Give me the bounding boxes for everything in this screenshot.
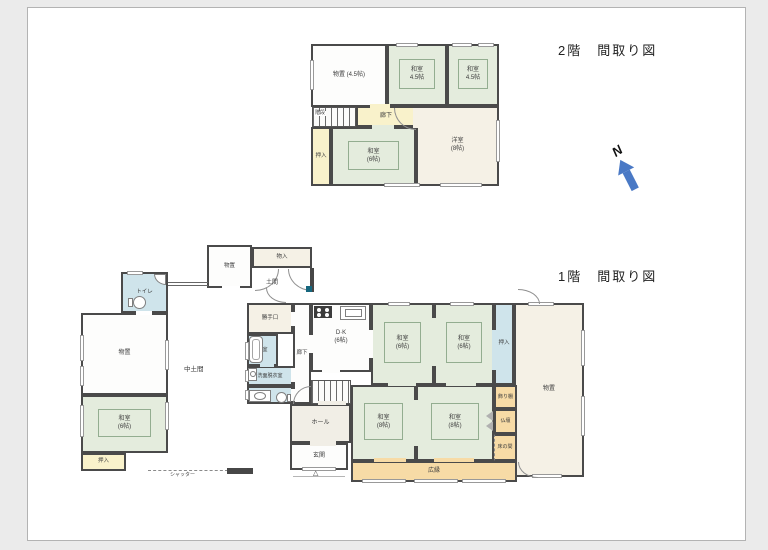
room-label: 廊下 bbox=[296, 350, 307, 357]
label-shutter: シャッター bbox=[170, 473, 195, 478]
room-label: 飾り棚 bbox=[498, 394, 513, 401]
door-opening bbox=[291, 368, 295, 382]
entrance-marker: △ bbox=[313, 470, 318, 477]
door-arc bbox=[266, 288, 286, 303]
window bbox=[127, 271, 143, 275]
window bbox=[302, 467, 336, 471]
room-label: 洗面脱衣室 bbox=[257, 373, 282, 380]
door-opening bbox=[322, 369, 340, 373]
window bbox=[362, 479, 406, 483]
room-label: (8帖) bbox=[451, 146, 464, 154]
door-opening bbox=[492, 330, 496, 370]
toilet2-tank-icon bbox=[287, 394, 291, 402]
room-label: 玄関 bbox=[313, 453, 325, 461]
door-opening bbox=[434, 458, 474, 462]
room-label: 廊下 bbox=[380, 113, 392, 121]
room-2f-storage: 物置 (4.5帖) bbox=[311, 44, 387, 107]
room-1f-genkan: 玄関 bbox=[290, 443, 348, 470]
room-label: (8帖) bbox=[377, 423, 390, 431]
porch-line bbox=[293, 476, 345, 477]
label-2f-stairs: 階段 bbox=[314, 111, 326, 116]
room-1f-washitsu-6b: 和室(6帖) bbox=[434, 303, 494, 385]
room-2f-yoshitsu: 洋室(8帖) bbox=[416, 106, 499, 186]
window bbox=[388, 302, 410, 306]
bathtub-icon bbox=[249, 336, 263, 363]
window bbox=[396, 43, 418, 47]
room-2f-washitsu-b: 和室4.5帖 bbox=[447, 44, 499, 106]
window bbox=[462, 479, 506, 483]
window bbox=[80, 366, 84, 386]
room-label: 和室 bbox=[449, 415, 461, 423]
room-1f-oshiire-right: 押入 bbox=[494, 303, 514, 385]
room-label: (6帖) bbox=[367, 157, 380, 165]
door-opening bbox=[432, 318, 436, 366]
door-opening bbox=[222, 286, 240, 290]
door-opening bbox=[309, 335, 313, 353]
door-opening bbox=[310, 441, 336, 446]
door-opening bbox=[388, 382, 416, 386]
door-opening bbox=[136, 311, 152, 315]
room-1f-storage-right: 物置 bbox=[514, 303, 584, 477]
room-label: 物入 bbox=[276, 254, 287, 261]
room-2f-washitsu-a: 和室4.5帖 bbox=[387, 44, 447, 106]
room-label: D·K bbox=[336, 330, 346, 338]
window bbox=[452, 43, 472, 47]
room-label: (6帖) bbox=[396, 344, 409, 352]
room-1f-katteguchi: 勝手口 bbox=[247, 303, 293, 334]
room-label: 仏壇 bbox=[500, 418, 510, 425]
room-1f-storage-left: 物置 bbox=[81, 313, 168, 395]
room-label: ホール bbox=[311, 420, 329, 428]
window bbox=[414, 479, 458, 483]
window bbox=[581, 396, 585, 436]
room-2f-oshiire: 押入 bbox=[311, 127, 331, 186]
connecting-wall bbox=[168, 282, 208, 286]
window bbox=[496, 120, 500, 162]
room-1f-washitsu-8b: 和室(8帖) bbox=[416, 385, 494, 461]
room-label: 和室 bbox=[396, 336, 408, 344]
room-label: 和室 bbox=[467, 67, 479, 75]
door-opening bbox=[318, 401, 346, 405]
door-opening bbox=[369, 330, 373, 358]
room-1f-hall: ホール bbox=[290, 404, 351, 443]
window bbox=[80, 335, 84, 361]
label-doma: 土間 bbox=[266, 280, 278, 286]
label-nakadoma: 中土間 bbox=[184, 367, 204, 374]
room-1f-washitsu-left: 和室(6帖) bbox=[81, 395, 168, 453]
room-label: 物置 bbox=[543, 386, 555, 394]
door-opening bbox=[372, 125, 394, 129]
room-label: 4.5帖 bbox=[410, 75, 424, 83]
room-label: 物置 bbox=[118, 350, 130, 358]
room-label: 押入 bbox=[98, 458, 109, 465]
window bbox=[80, 405, 84, 437]
room-label: 和室 bbox=[367, 149, 379, 157]
vanity-basin-icon bbox=[254, 392, 266, 400]
room-label: 押入 bbox=[498, 340, 509, 347]
room-label: 広縁 bbox=[428, 468, 440, 476]
room-label: 洋室 bbox=[451, 138, 463, 146]
room-2f-washitsu-c: 和室(6帖) bbox=[331, 127, 416, 186]
room-label: (6帖) bbox=[334, 338, 347, 346]
room-label: (8帖) bbox=[448, 423, 461, 431]
toilet2-bowl-icon bbox=[276, 392, 287, 403]
room-1f-storage-top: 物置 bbox=[207, 245, 252, 288]
room-1f-butsudan: 仏壇 bbox=[494, 409, 517, 434]
room-label: (6帖) bbox=[457, 344, 470, 352]
washer-drum-icon bbox=[250, 371, 256, 377]
room-label: 和室 bbox=[411, 67, 423, 75]
stove-icon bbox=[314, 306, 332, 318]
window bbox=[384, 183, 420, 187]
window bbox=[165, 402, 169, 430]
room-label: 物置 bbox=[224, 263, 235, 270]
room-label: 勝手口 bbox=[262, 315, 279, 322]
door-opening bbox=[374, 458, 406, 462]
room-1f-washitsu-8a: 和室(8帖) bbox=[351, 385, 416, 461]
room-label: 和室 bbox=[377, 415, 389, 423]
door-opening bbox=[414, 400, 418, 446]
folding-door-icon bbox=[486, 411, 494, 432]
room-label: 和室 bbox=[458, 336, 470, 344]
window bbox=[310, 60, 314, 90]
room-label: 4.5帖 bbox=[466, 75, 480, 83]
door-arc bbox=[518, 289, 540, 304]
door-opening bbox=[260, 363, 274, 367]
room-1f-tokonoma: 床の間 bbox=[494, 434, 517, 461]
door-opening bbox=[291, 312, 295, 326]
wall-segment bbox=[227, 468, 253, 474]
floorplan-canvas: 2階 間取り図 1階 間取り図 N 物置 (4.5帖)和室4.5帖和室4.5帖廊… bbox=[0, 0, 768, 550]
pillar-marker bbox=[306, 286, 312, 292]
room-label: 押入 bbox=[315, 153, 326, 160]
room-label: 床の間 bbox=[497, 444, 512, 451]
room-label: トイレ bbox=[136, 289, 153, 296]
door-opening bbox=[370, 104, 390, 108]
room-1f-kazaridana: 飾り棚 bbox=[494, 385, 517, 409]
window bbox=[450, 302, 474, 306]
window bbox=[440, 183, 482, 187]
window bbox=[581, 330, 585, 366]
room-label: 和室 bbox=[118, 416, 130, 424]
room-1f-washitsu-6a: 和室(6帖) bbox=[371, 303, 434, 385]
window bbox=[165, 340, 169, 370]
room-1f-oshiire-left: 押入 bbox=[81, 453, 126, 471]
room-1f-monoire: 物入 bbox=[252, 247, 312, 268]
room-label: (6帖) bbox=[118, 424, 131, 432]
door-opening bbox=[446, 382, 476, 386]
room-label: 物置 (4.5帖) bbox=[333, 72, 365, 80]
sink-basin-icon bbox=[345, 309, 362, 317]
window bbox=[478, 43, 494, 47]
toilet-bowl-icon bbox=[133, 296, 146, 309]
